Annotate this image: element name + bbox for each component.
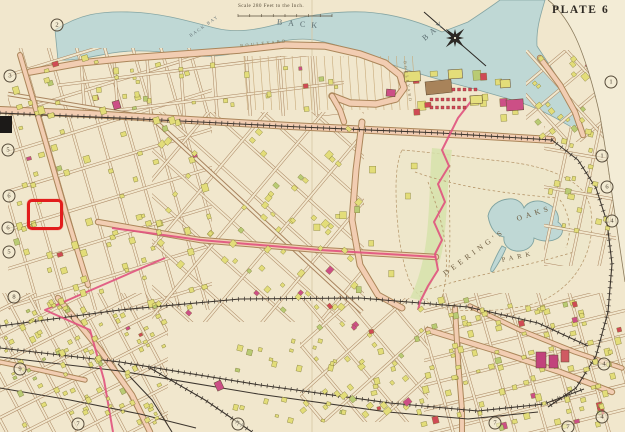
plate-ref-marker-7: 7 bbox=[562, 421, 575, 432]
plate-ref-marker-7: 7 bbox=[72, 418, 85, 431]
scale-caption: Scale 280 Feet to the Inch. bbox=[238, 3, 304, 9]
plate-ref-marker-2: 2 bbox=[51, 19, 64, 32]
plate-ref-marker-5: 5 bbox=[2, 144, 15, 157]
plate-ref-marker-1: 1 bbox=[596, 150, 609, 163]
plate-ref-marker-3: 3 bbox=[4, 70, 17, 83]
plate-ref-marker-6: 6 bbox=[601, 181, 614, 194]
plate-ref-marker-8: 8 bbox=[8, 291, 21, 304]
plate-ref-marker-7: 7 bbox=[489, 417, 502, 430]
plate-ref-marker-4: 4 bbox=[596, 411, 609, 424]
plate-ref-marker-9: 9 bbox=[14, 363, 27, 376]
plate-title: PLATE 6 bbox=[552, 4, 609, 16]
plate-ref-marker-5: 5 bbox=[3, 246, 16, 259]
plate-ref-marker-6: 6 bbox=[3, 190, 16, 203]
map-artwork bbox=[0, 0, 625, 432]
plate-ref-marker-6: 6 bbox=[2, 222, 15, 235]
atlas-plate-map: PLATE 6 Scale 280 Feet to the Inch. BACK… bbox=[0, 0, 625, 432]
plate-ref-marker-4: 4 bbox=[606, 215, 619, 228]
plate-ref-marker-1: 1 bbox=[605, 76, 618, 89]
highlight-annotation-box bbox=[27, 199, 63, 230]
plate-ref-marker-7: 7 bbox=[232, 418, 245, 431]
plate-ref-marker-4: 4 bbox=[598, 358, 611, 371]
